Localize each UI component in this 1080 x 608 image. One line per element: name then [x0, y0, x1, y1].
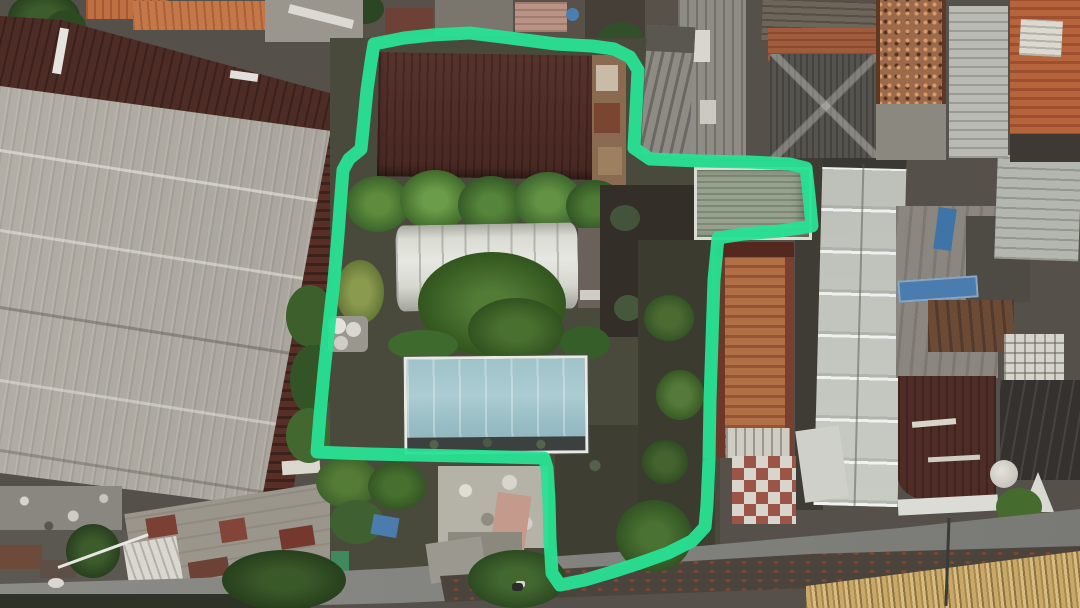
property-boundary-line — [317, 33, 812, 585]
annotation-layer — [0, 0, 1080, 608]
aerial-photo — [0, 0, 1080, 608]
